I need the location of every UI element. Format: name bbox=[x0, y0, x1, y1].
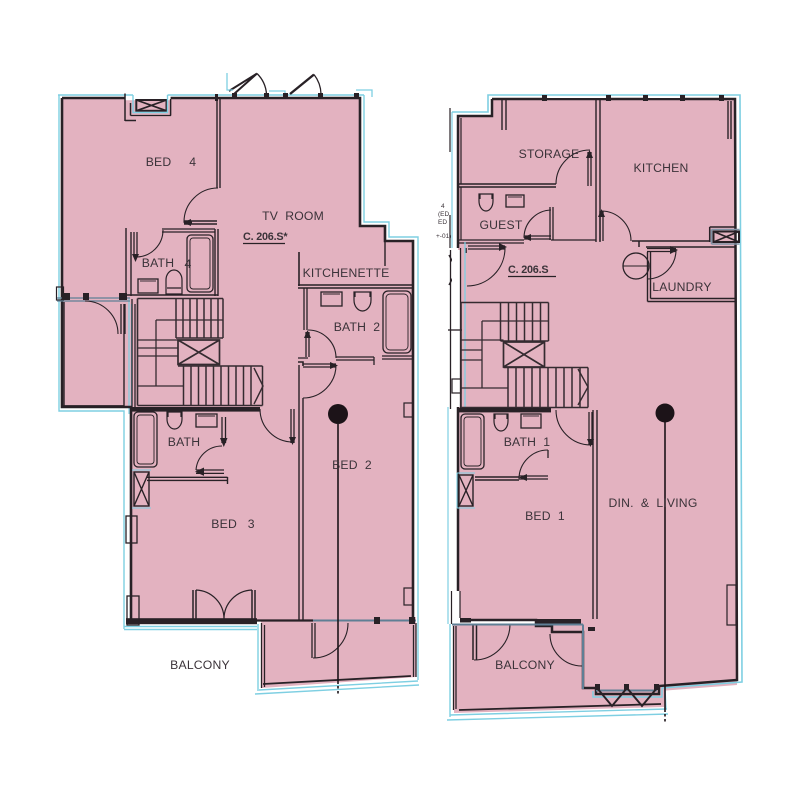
svg-text:LAUNDRY: LAUNDRY bbox=[652, 280, 711, 294]
svg-text:BED 4: BED 4 bbox=[146, 155, 197, 169]
svg-text:BATH 1: BATH 1 bbox=[504, 435, 551, 449]
svg-text:(ED: (ED bbox=[438, 211, 450, 218]
svg-text:DIN. & LIVING: DIN. & LIVING bbox=[608, 496, 697, 510]
svg-text:BATH: BATH bbox=[142, 256, 174, 270]
svg-text:4: 4 bbox=[441, 203, 445, 210]
svg-text:BATH: BATH bbox=[168, 435, 200, 449]
svg-text:KITCHENETTE: KITCHENETTE bbox=[303, 266, 390, 280]
svg-text:BALCONY: BALCONY bbox=[495, 658, 555, 672]
svg-text:ED: ED bbox=[438, 219, 447, 226]
svg-text:C. 206.S*: C. 206.S* bbox=[243, 231, 288, 243]
svg-text:KITCHEN: KITCHEN bbox=[634, 161, 689, 175]
svg-text:BALCONY: BALCONY bbox=[170, 658, 230, 672]
svg-text:+-01): +-01) bbox=[436, 233, 451, 240]
svg-text:BED 1: BED 1 bbox=[525, 509, 565, 523]
svg-text:GUEST: GUEST bbox=[480, 218, 523, 232]
svg-text:STORAGE: STORAGE bbox=[519, 147, 580, 161]
svg-text:C. 206.S: C. 206.S bbox=[508, 264, 548, 276]
svg-text:4: 4 bbox=[185, 257, 192, 271]
svg-text:BED 2: BED 2 bbox=[332, 458, 372, 472]
svg-text:TV ROOM: TV ROOM bbox=[262, 209, 324, 223]
svg-text:BATH 2: BATH 2 bbox=[334, 320, 381, 334]
svg-text:BED 3: BED 3 bbox=[211, 517, 254, 531]
